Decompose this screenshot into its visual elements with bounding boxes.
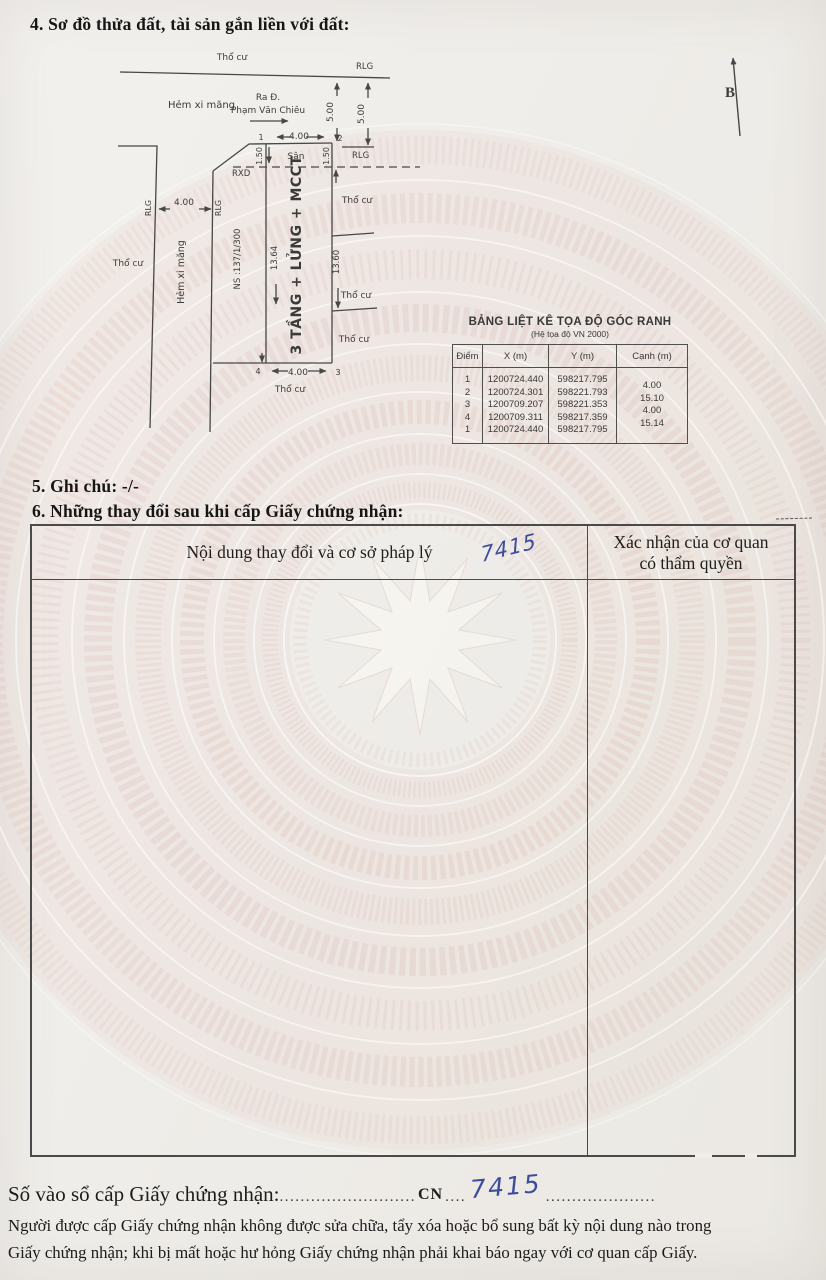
changes-table: Nội dung thay đổi và cơ sở pháp lý 7415 … — [30, 524, 796, 1157]
street-top-line — [120, 72, 390, 78]
label-dim-1360: 13.60 — [332, 250, 342, 274]
col-header-y: Y (m) — [549, 345, 616, 368]
label-dim-150-left: 1.50 — [255, 147, 264, 165]
label-tho-cu-top: Thổ cư — [216, 52, 249, 63]
section6-title: 6. Những thay đổi sau khi cấp Giấy chứng… — [32, 501, 404, 522]
label-rxd: RXD — [232, 169, 251, 179]
label-street-name: Phạm Văn Chiêu — [231, 105, 305, 116]
handwritten-note: 7415 — [480, 529, 538, 567]
changes-col2-header-line2: có thẩm quyền — [588, 553, 794, 574]
handwritten-serial-number: 7415 — [469, 1169, 543, 1204]
label-hem-xi-mang-alley: Hẻm xi măng — [176, 240, 187, 304]
changes-col1-header: Nội dung thay đổi và cơ sở pháp lý — [187, 542, 433, 563]
changes-col1-header-cell: Nội dung thay đổi và cơ sở pháp lý 7415 — [32, 526, 588, 580]
certificate-page: 4. Sơ đồ thửa đất, tài sản gắn liền với … — [0, 0, 826, 1280]
point-id: 1 — [453, 374, 482, 387]
left-boundary-line — [118, 146, 157, 428]
serial-row: Số vào sổ cấp Giấy chứng nhận:..........… — [8, 1178, 656, 1207]
point-x: 1200709.207 — [483, 399, 548, 412]
label-tho-cu-right-lower: Thổ cư — [338, 334, 371, 345]
label-dim-400-bottom: 4.00 — [288, 368, 308, 378]
label-house-no: NS :137/1/300 — [233, 229, 243, 290]
edge-length: 4.00 — [617, 405, 687, 418]
label-tho-cu-right-upper: Thổ cư — [341, 195, 374, 206]
section5-note: 5. Ghi chú: -/- — [32, 476, 139, 497]
label-building: 3 TẦNG + LỬNG + MCCT — [286, 155, 305, 354]
label-dim-500-right: 5.00 — [357, 104, 367, 124]
point-x: 1200709.311 — [483, 412, 548, 425]
changes-body-right — [588, 580, 794, 1155]
changes-col2-header-cell: Xác nhận của cơ quan có thẩm quyền — [588, 526, 794, 580]
label-rlg-alley-right: RLG — [214, 200, 223, 216]
dotted-leader: .......................... — [280, 1189, 417, 1205]
col-point: Điểm 1 2 3 4 1 — [453, 345, 483, 443]
footer-note-line1: Người được cấp Giấy chứng nhận không đượ… — [8, 1212, 824, 1239]
coordinate-table-grid: Điểm 1 2 3 4 1 X (m) 1200724.440 1200724… — [452, 344, 688, 444]
label-tho-cu-left: Thổ cư — [112, 258, 145, 269]
point-y: 598217.795 — [549, 424, 616, 437]
point-id: 2 — [453, 387, 482, 400]
coordinate-table: BẢNG LIỆT KÊ TỌA ĐỘ GÓC RANH (Hệ tọa độ … — [452, 316, 688, 444]
point-id: 3 — [453, 399, 482, 412]
label-dim-400-top: 4.00 — [289, 132, 309, 142]
border-break — [745, 1153, 757, 1158]
point-x: 1200724.440 — [483, 374, 548, 387]
dotted-leader: .... — [445, 1189, 466, 1205]
point-x: 1200724.301 — [483, 387, 548, 400]
coordinate-table-subtitle: (Hệ tọa độ VN 2000) — [452, 329, 688, 339]
north-label: B — [725, 85, 735, 101]
col-edge: Cạnh (m) 4.00 15.10 4.00 15.14 — [617, 345, 687, 443]
point-id: 4 — [453, 412, 482, 425]
edge-length: 15.14 — [617, 418, 687, 431]
col-x: X (m) 1200724.440 1200724.301 1200709.20… — [483, 345, 549, 443]
label-hem-xi-mang-street: Hẻm xi măng — [168, 99, 235, 111]
col-header-point: Điểm — [453, 345, 482, 368]
serial-prefix: CN — [418, 1186, 443, 1203]
label-rlg-street: RLG — [356, 62, 373, 72]
label-pt3: 3 — [335, 368, 340, 377]
footer-note-line2: Giấy chứng nhận; khi bị mất hoặc hư hỏng… — [8, 1239, 824, 1266]
point-id: 1 — [453, 424, 482, 437]
changes-body-left — [32, 580, 588, 1155]
point-y: 598221.793 — [549, 387, 616, 400]
point-x: 1200724.440 — [483, 424, 548, 437]
footer-note: Người được cấp Giấy chứng nhận không đượ… — [8, 1212, 824, 1266]
coordinate-table-title: BẢNG LIỆT KÊ TỌA ĐỘ GÓC RANH — [452, 316, 688, 328]
col-header-x: X (m) — [483, 345, 548, 368]
dotted-leader: ..................... — [546, 1189, 656, 1205]
col-header-edge: Cạnh (m) — [617, 345, 687, 368]
label-pt1: 1 — [258, 133, 263, 142]
label-rlg-alley-left: RLG — [144, 200, 153, 216]
label-pt4: 4 — [255, 367, 260, 376]
label-tho-cu-right-mid: Thổ cư — [340, 290, 373, 301]
label-rlg-setback: RLG — [352, 151, 369, 161]
col-y: Y (m) 598217.795 598221.793 598221.353 5… — [549, 345, 617, 443]
label-dim-1364: 13.64 — [270, 246, 280, 270]
label-ra-d: Ra Đ. — [256, 93, 280, 103]
edge-length: 4.00 — [617, 380, 687, 393]
label-dim-500-left: 5.00 — [326, 102, 336, 122]
label-tho-cu-bottom: Thổ cư — [274, 384, 307, 395]
point-y: 598217.795 — [549, 374, 616, 387]
label-pt2: 2 — [337, 134, 342, 143]
point-y: 598221.353 — [549, 399, 616, 412]
changes-col2-header-line1: Xác nhận của cơ quan — [588, 532, 794, 553]
point-y: 598217.359 — [549, 412, 616, 425]
edge-length: 15.10 — [617, 393, 687, 406]
alley-right-line — [210, 171, 213, 432]
border-break — [695, 1153, 712, 1158]
label-dim-150-right: 1.50 — [322, 147, 331, 165]
label-dim-400-alley: 4.00 — [174, 198, 194, 208]
serial-label: Số vào sổ cấp Giấy chứng nhận: — [8, 1182, 280, 1206]
